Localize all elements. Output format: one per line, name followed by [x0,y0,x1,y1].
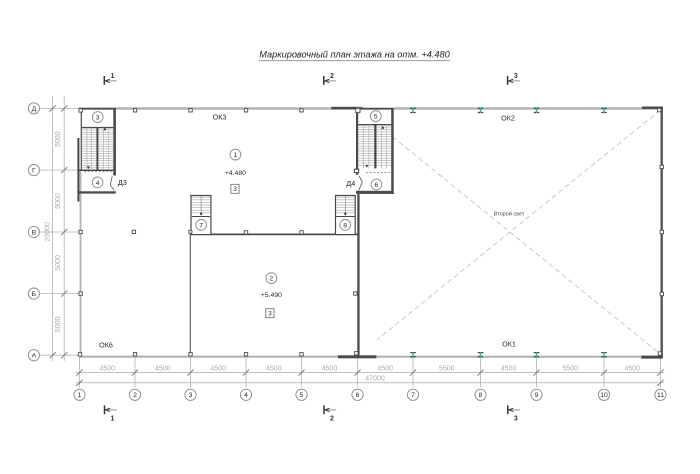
svg-text:ОК3: ОК3 [213,113,227,122]
svg-text:4500: 4500 [210,365,226,372]
svg-text:6: 6 [375,182,379,189]
svg-text:Д4: Д4 [346,179,355,188]
svg-text:2: 2 [270,276,274,283]
svg-text:1: 1 [78,392,82,399]
svg-text:Д: Д [32,106,37,113]
svg-text:2: 2 [133,392,137,399]
svg-text:4500: 4500 [377,365,393,372]
svg-text:4: 4 [244,392,248,399]
svg-text:ОК1: ОК1 [502,340,516,349]
svg-text:3: 3 [96,115,100,122]
svg-text:Д3: Д3 [118,178,127,187]
svg-text:3: 3 [514,416,518,423]
svg-text:4500: 4500 [624,365,640,372]
svg-text:6: 6 [356,392,360,399]
svg-text:Маркировочный план этажа на от: Маркировочный план этажа на отм. +4.480 [259,49,450,59]
svg-text:8: 8 [479,392,483,399]
svg-text:Б: Б [32,291,37,298]
svg-text:4500: 4500 [501,365,517,372]
svg-text:20000: 20000 [45,222,52,242]
svg-text:ОК2: ОК2 [501,113,515,122]
svg-text:В: В [32,229,37,236]
svg-text:1: 1 [234,152,238,159]
svg-text:5: 5 [374,114,378,121]
svg-text:5000: 5000 [55,255,62,271]
svg-text:+5.490: +5.490 [261,292,282,299]
svg-text:5000: 5000 [55,131,62,147]
svg-text:3: 3 [514,73,518,80]
svg-text:5000: 5000 [55,193,62,209]
svg-text:А: А [32,353,37,360]
svg-text:7: 7 [411,392,415,399]
svg-text:ОК6: ОК6 [99,341,113,350]
svg-text:9: 9 [535,392,539,399]
svg-text:4500: 4500 [266,365,282,372]
svg-text:5500: 5500 [439,365,455,372]
svg-text:3: 3 [189,392,193,399]
svg-text:4500: 4500 [322,365,338,372]
svg-text:+4.480: +4.480 [225,170,246,177]
svg-text:1: 1 [111,416,115,423]
svg-text:1: 1 [111,73,115,80]
svg-text:2: 2 [330,416,334,423]
svg-text:3: 3 [233,186,237,193]
svg-text:3: 3 [268,311,272,318]
svg-text:4500: 4500 [155,365,171,372]
svg-text:5500: 5500 [562,365,578,372]
svg-text:Г: Г [32,168,36,175]
svg-text:7: 7 [199,222,203,229]
svg-text:2: 2 [330,73,334,80]
svg-text:5: 5 [300,392,304,399]
svg-text:5000: 5000 [55,317,62,333]
svg-text:4: 4 [96,180,100,187]
svg-text:47000: 47000 [365,376,385,383]
svg-text:11: 11 [657,392,664,399]
svg-text:4500: 4500 [99,365,115,372]
svg-text:10: 10 [600,392,608,399]
svg-text:Второй свет: Второй свет [494,211,525,218]
svg-text:8: 8 [343,222,347,229]
